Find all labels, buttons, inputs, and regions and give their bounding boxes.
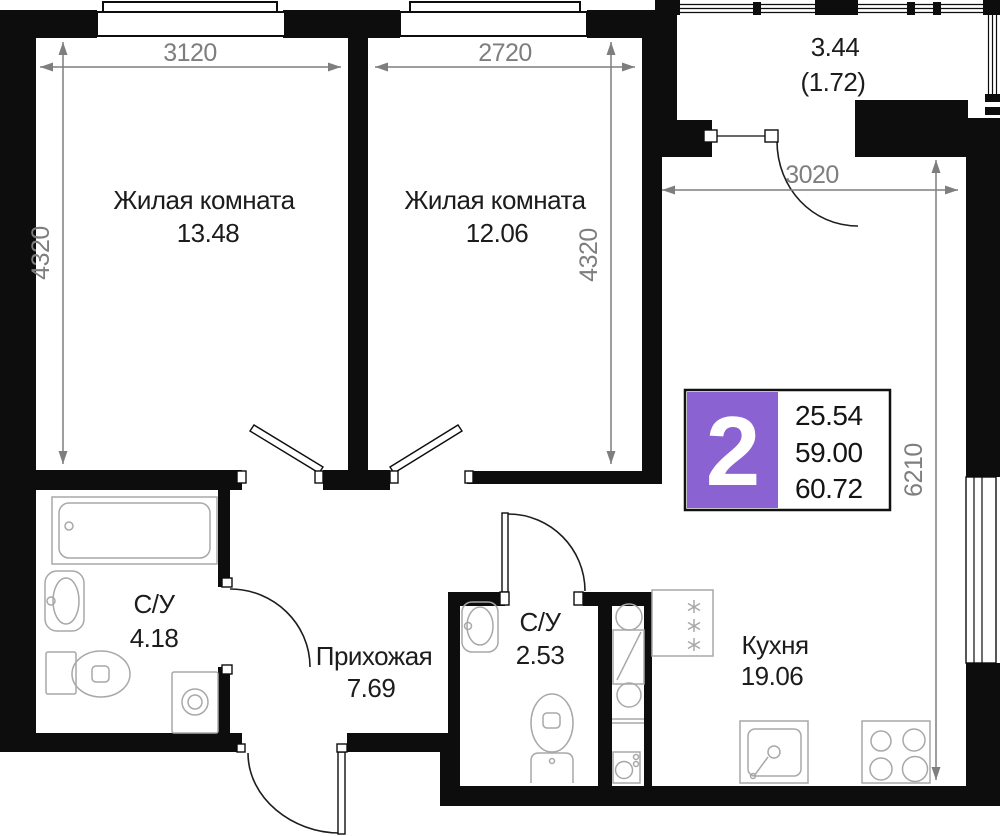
- dim-label: 6210: [900, 443, 928, 497]
- wall-balcony-left: [655, 10, 677, 120]
- bathroom2-label: С/У: [519, 607, 561, 637]
- kitchen-sink-icon: [740, 721, 808, 783]
- wall-hall-top-stub: [323, 470, 390, 490]
- door-frame-marker: [237, 471, 246, 483]
- door-frame-marker: [337, 744, 347, 752]
- wall-room-partition: [348, 38, 368, 472]
- door-frame-marker: [237, 744, 245, 752]
- balcony-area-coef: (1.72): [801, 67, 866, 97]
- door-frame-marker: [704, 130, 717, 142]
- sink-icon: [45, 571, 84, 631]
- door-frame-marker: [465, 471, 473, 483]
- room2-area: 12.06: [466, 218, 529, 248]
- wall-bath1-right-lower: [218, 667, 230, 733]
- wall-balcony-bottom-right-up: [855, 100, 968, 118]
- wall-balcony-bottom-right: [855, 118, 1000, 157]
- door-frame-marker: [315, 471, 323, 483]
- wall-su2-top-right: [583, 592, 652, 606]
- bathroom1-area: 4.18: [130, 623, 179, 653]
- dim-room2-depth: 4320: [575, 42, 616, 464]
- door-room2: [390, 425, 473, 483]
- bathtub-icon: [52, 497, 217, 564]
- wall-kitchen-right-lower: [966, 663, 1000, 788]
- room1-area: 13.48: [177, 218, 240, 248]
- glazing-mullion: [655, 0, 680, 15]
- dim-label: 4320: [27, 226, 55, 280]
- door-frame-marker: [222, 665, 232, 674]
- glazing-mullion: [983, 0, 1000, 15]
- glazing-mullion: [985, 94, 1000, 102]
- glazing-mullion: [933, 2, 941, 15]
- meter-icon: [613, 752, 640, 783]
- wall-bottom-mid: [347, 733, 457, 752]
- wall-left: [0, 10, 36, 752]
- balcony-area: 3.44: [811, 32, 860, 62]
- wall-shaft-right: [644, 606, 652, 786]
- window-room1: [97, 2, 285, 36]
- wall-kitchen-right-upper: [966, 157, 1000, 477]
- door-frame-marker: [222, 578, 232, 587]
- wall-su2-top-left: [448, 592, 505, 606]
- badge-area-without-balcony: 59.00: [795, 437, 863, 468]
- room1-label: Жилая комната: [113, 185, 295, 215]
- hallway-label: Прихожая: [316, 641, 432, 671]
- wall-bath1-right-upper: [218, 490, 230, 587]
- dim-label: 3020: [785, 161, 839, 189]
- window-room2: [400, 2, 587, 36]
- door-bathroom2: [500, 513, 585, 605]
- room2-label: Жилая комната: [404, 185, 586, 215]
- badge-rooms-count: 2: [706, 396, 761, 506]
- bathroom1-label: С/У: [133, 589, 175, 619]
- dim-kitchen-width: 3020: [662, 161, 958, 195]
- window-kitchen: [966, 477, 996, 663]
- wall-hall-top-left: [0, 470, 242, 490]
- glazing-mullion: [907, 2, 915, 15]
- wall-top-mid: [283, 10, 400, 38]
- dim-room1-width: 3120: [40, 39, 341, 72]
- door-room1: [237, 425, 323, 483]
- toilet-icon: [46, 651, 130, 697]
- hallway-area: 7.69: [347, 673, 396, 703]
- dim-label: 4320: [575, 228, 603, 282]
- kitchen-label: Кухня: [741, 630, 808, 660]
- dim-label: 2720: [478, 39, 532, 67]
- boiler-icon: [612, 604, 644, 723]
- door-frame-marker: [574, 592, 583, 605]
- toilet2-icon: [531, 694, 573, 783]
- wall-shaft-left: [598, 606, 612, 786]
- dim-kitchen-depth: 6210: [900, 160, 941, 780]
- stove-icon: [862, 721, 930, 783]
- badge-total-area: 60.72: [795, 473, 863, 504]
- apartment-badge: 2 25.54 59.00 60.72: [685, 390, 890, 510]
- glazing-mullion: [753, 2, 761, 15]
- dim-label: 3120: [163, 39, 217, 67]
- wall-bottom-left: [0, 733, 242, 752]
- floor-plan-drawing: 3120 4320 2720 4320 3020 6210 Жилая комн…: [0, 0, 1000, 836]
- washing-machine-icon: [172, 672, 218, 733]
- door-entrance: [237, 744, 347, 834]
- door-frame-marker: [765, 130, 778, 142]
- wall-kitchen-bottom: [440, 786, 1000, 806]
- floor-plan: 3120 4320 2720 4320 3020 6210 Жилая комн…: [0, 0, 1000, 836]
- glazing-mullion: [815, 0, 858, 15]
- bathroom2-area: 2.53: [516, 640, 565, 670]
- door-frame-marker: [390, 471, 398, 483]
- kitchen-area: 19.06: [741, 661, 804, 691]
- fridge-icon: [652, 590, 713, 656]
- door-bathroom1: [222, 578, 310, 674]
- dim-room2-width: 2720: [375, 39, 635, 72]
- glazing-mullion: [985, 107, 1000, 115]
- sink2-icon: [462, 602, 498, 652]
- door-frame-marker: [500, 592, 509, 605]
- wall-su2-left: [448, 592, 460, 786]
- wall-hall-top-right: [467, 471, 658, 484]
- badge-living-area: 25.54: [795, 400, 863, 431]
